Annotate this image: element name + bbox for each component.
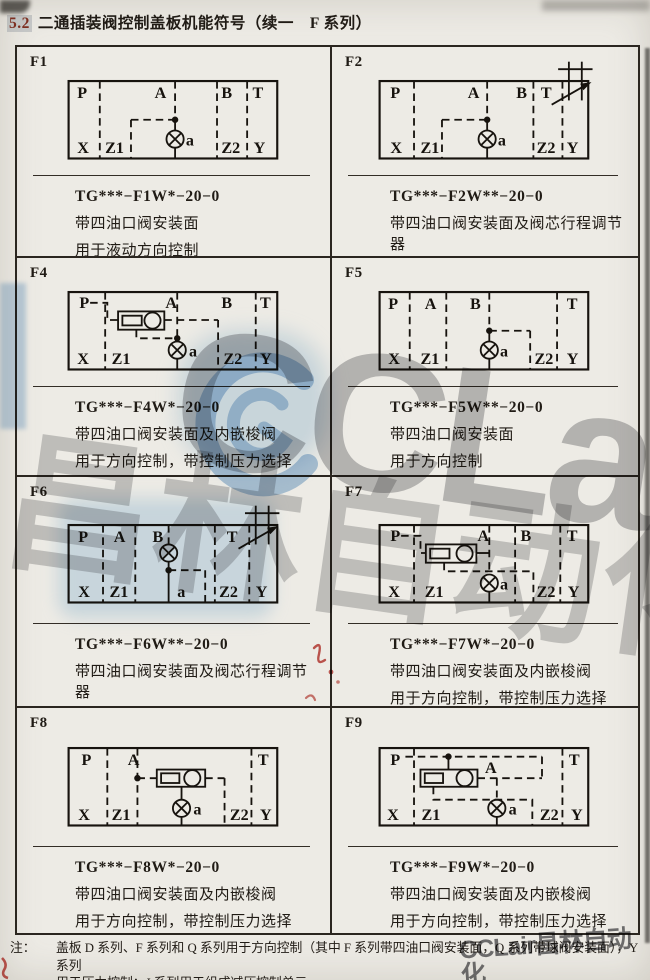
scan-edge-shadow	[542, 0, 650, 11]
port-label: T	[252, 85, 263, 102]
port-label: Z2	[229, 807, 248, 824]
port-label: X	[388, 584, 400, 601]
cell-id-label: F7	[332, 477, 638, 501]
port-label: T	[569, 752, 580, 769]
description-line1: 带四油口阀安装面及内嵌梭阀	[75, 883, 316, 904]
port-label: X	[390, 140, 402, 157]
port-label: A	[468, 85, 480, 102]
footnote-label: 注：	[10, 940, 36, 958]
cell-divider	[348, 386, 618, 387]
port-label: A	[165, 295, 177, 312]
footnote-line2: 用于压力控制：J 系列用于组成减压控制单元。	[56, 975, 644, 980]
model-code: TG***−F9W*−20−0	[390, 859, 638, 877]
hydraulic-schematic-f1: P A B T X Z1 a Z2 Y	[60, 59, 288, 173]
port-label: Z2	[219, 584, 238, 601]
cell-divider	[348, 846, 618, 847]
footnote: 注： 盖板 D 系列、F 系列和 Q 系列用于方向控制（其中 F 系列带四油口阀…	[10, 940, 644, 980]
port-label: Z2	[534, 351, 553, 368]
port-label: Z1	[109, 584, 128, 601]
port-label: Z1	[111, 807, 130, 824]
model-code: TG***−F2W**−20−0	[390, 188, 638, 206]
port-label: Z1	[420, 140, 439, 157]
port-label: Z1	[111, 351, 130, 368]
model-code: TG***−F7W*−20−0	[390, 636, 638, 654]
shuttle-valve-icon	[420, 770, 477, 787]
model-code: TG***−F8W*−20−0	[75, 859, 330, 877]
port-label: A	[113, 529, 125, 546]
model-code: TG***−F4W*−20−0	[75, 399, 330, 417]
port-label: a	[193, 802, 201, 819]
description-line1: 带四油口阀安装面	[75, 212, 316, 233]
page-title: 5.2二通插装阀控制盖板机能符号（续一 F 系列）	[7, 11, 372, 33]
stroke-adjuster-icon	[552, 62, 593, 105]
model-code: TG***−F6W**−20−0	[75, 636, 330, 654]
port-label: P	[388, 296, 398, 313]
port-label: a	[189, 344, 197, 361]
cell-f8: F8 P A	[17, 708, 332, 933]
port-label: T	[567, 296, 578, 313]
port-label: a	[177, 584, 185, 601]
description-line1: 带四油口阀安装面及内嵌梭阀	[75, 423, 316, 444]
hydraulic-schematic-f4: P A B T X Z1 a Z2 Y	[60, 270, 288, 384]
port-label: P	[81, 752, 91, 769]
port-label: X	[388, 351, 400, 368]
port-label: B	[520, 528, 531, 545]
section-number: 5.2	[7, 15, 32, 32]
port-label: a	[500, 577, 508, 594]
port-label: B	[152, 529, 163, 546]
port-label: X	[387, 807, 399, 824]
hydraulic-schematic-f7: P A B T X Z1 a Z2 Y	[371, 503, 599, 617]
hydraulic-schematic-f5: P A B T X Z1 a Z2 Y	[371, 270, 599, 384]
port-label: T	[226, 529, 237, 546]
port-label: B	[516, 85, 527, 102]
description-line1: 带四油口阀安装面及内嵌梭阀	[390, 883, 624, 904]
port-label: A	[477, 528, 489, 545]
cell-f4: F4 P A	[17, 258, 332, 477]
cell-f9: F9 P	[332, 708, 638, 933]
port-label: P	[77, 85, 87, 102]
port-label: B	[221, 295, 232, 312]
port-label: Z2	[221, 140, 240, 157]
description-line2: 用于方向控制，带控制压力选择	[390, 910, 624, 931]
shuttle-valve-icon	[426, 544, 477, 562]
port-label: X	[77, 140, 89, 157]
port-label: Y	[567, 140, 579, 157]
cell-f1: F1 P A B T X Z1 a	[17, 47, 332, 258]
cell-divider	[348, 175, 618, 176]
hydraulic-schematic-f9: P A T X Z1 a Z2 Y	[371, 726, 599, 840]
description-line2: 用于方向控制，带控制压力选择	[75, 910, 316, 931]
cell-divider	[33, 175, 310, 176]
port-label: Z1	[422, 807, 441, 824]
port-label: T	[260, 295, 271, 312]
port-label: Y	[260, 351, 272, 368]
port-label: Z2	[537, 140, 556, 157]
model-code: TG***−F5W**−20−0	[390, 399, 638, 417]
port-label: Z2	[537, 584, 556, 601]
cell-f7: F7 P A B	[332, 477, 638, 708]
cell-divider	[33, 623, 310, 624]
port-label: Y	[571, 807, 583, 824]
scan-edge-shadow	[645, 48, 650, 943]
port-label: A	[127, 752, 139, 769]
port-label: A	[425, 296, 437, 313]
port-label: a	[185, 133, 193, 150]
port-label: Y	[255, 584, 267, 601]
description-line2: 用于方向控制，带控制压力选择	[75, 450, 316, 471]
port-label: X	[78, 584, 90, 601]
port-label: P	[79, 295, 89, 312]
shuttle-valve-icon	[118, 311, 164, 329]
port-label: P	[390, 528, 400, 545]
cell-f5: F5 P A B T X Z1 a	[332, 258, 638, 477]
cell-divider	[33, 846, 310, 847]
hydraulic-schematic-f8: P A T X Z1 a Z2 Y	[60, 726, 288, 840]
port-label: Y	[260, 807, 272, 824]
description-line2: 用于液动方向控制	[75, 239, 316, 258]
port-label: Y	[567, 351, 579, 368]
port-label: B	[221, 85, 232, 102]
section-title-text: 二通插装阀控制盖板机能符号（续一 F 系列）	[38, 15, 372, 32]
model-code: TG***−F1W*−20−0	[75, 188, 330, 206]
port-label: Z1	[420, 351, 439, 368]
description-line1: 带四油口阀安装面及内嵌梭阀	[390, 660, 624, 681]
port-label: T	[257, 752, 268, 769]
shuttle-valve-icon	[156, 770, 204, 787]
description-line1: 带四油口阀安装面	[390, 423, 624, 444]
description-line1: 带四油口阀安装面及阀芯行程调节器	[75, 660, 316, 702]
port-label: a	[498, 133, 506, 150]
port-label: Z1	[425, 584, 444, 601]
description-line1: 带四油口阀安装面及阀芯行程调节器	[390, 212, 624, 254]
port-label: A	[154, 85, 166, 102]
stroke-adjuster-icon	[238, 506, 279, 549]
port-label: a	[500, 344, 508, 361]
port-label: P	[390, 752, 400, 769]
port-label: B	[470, 296, 481, 313]
cell-divider	[33, 386, 310, 387]
port-label: a	[509, 802, 517, 819]
port-label: Z2	[540, 807, 559, 824]
cell-id-label: F6	[17, 477, 330, 501]
port-label: P	[390, 85, 400, 102]
port-label: Y	[568, 584, 580, 601]
hydraulic-schematic-f6: P A B T X Z1 a Z2 Y	[60, 503, 288, 617]
port-label: T	[567, 528, 578, 545]
port-label: P	[78, 529, 88, 546]
hydraulic-schematic-f2: P A B T X Z1 a Z2 Y	[371, 59, 599, 173]
cell-divider	[348, 623, 618, 624]
footnote-line1: 盖板 D 系列、F 系列和 Q 系列用于方向控制（其中 F 系列带四油口阀安装面…	[56, 940, 644, 975]
port-label: T	[541, 85, 552, 102]
port-label: A	[485, 760, 497, 777]
description-line2: 用于方向控制，带控制压力选择	[390, 687, 624, 708]
scanned-catalog-page: 5.2二通插装阀控制盖板机能符号（续一 F 系列） F1 P A	[0, 0, 650, 980]
description-line2: 用于方向控制	[390, 450, 624, 471]
symbol-table: F1 P A B T X Z1 a	[15, 45, 640, 935]
port-label: Y	[253, 140, 265, 157]
cell-f2: F2	[332, 47, 638, 258]
port-label: X	[78, 807, 90, 824]
port-label: X	[77, 351, 89, 368]
port-label: Z1	[105, 140, 124, 157]
cell-f6: F6	[17, 477, 332, 708]
port-label: Z2	[223, 351, 242, 368]
